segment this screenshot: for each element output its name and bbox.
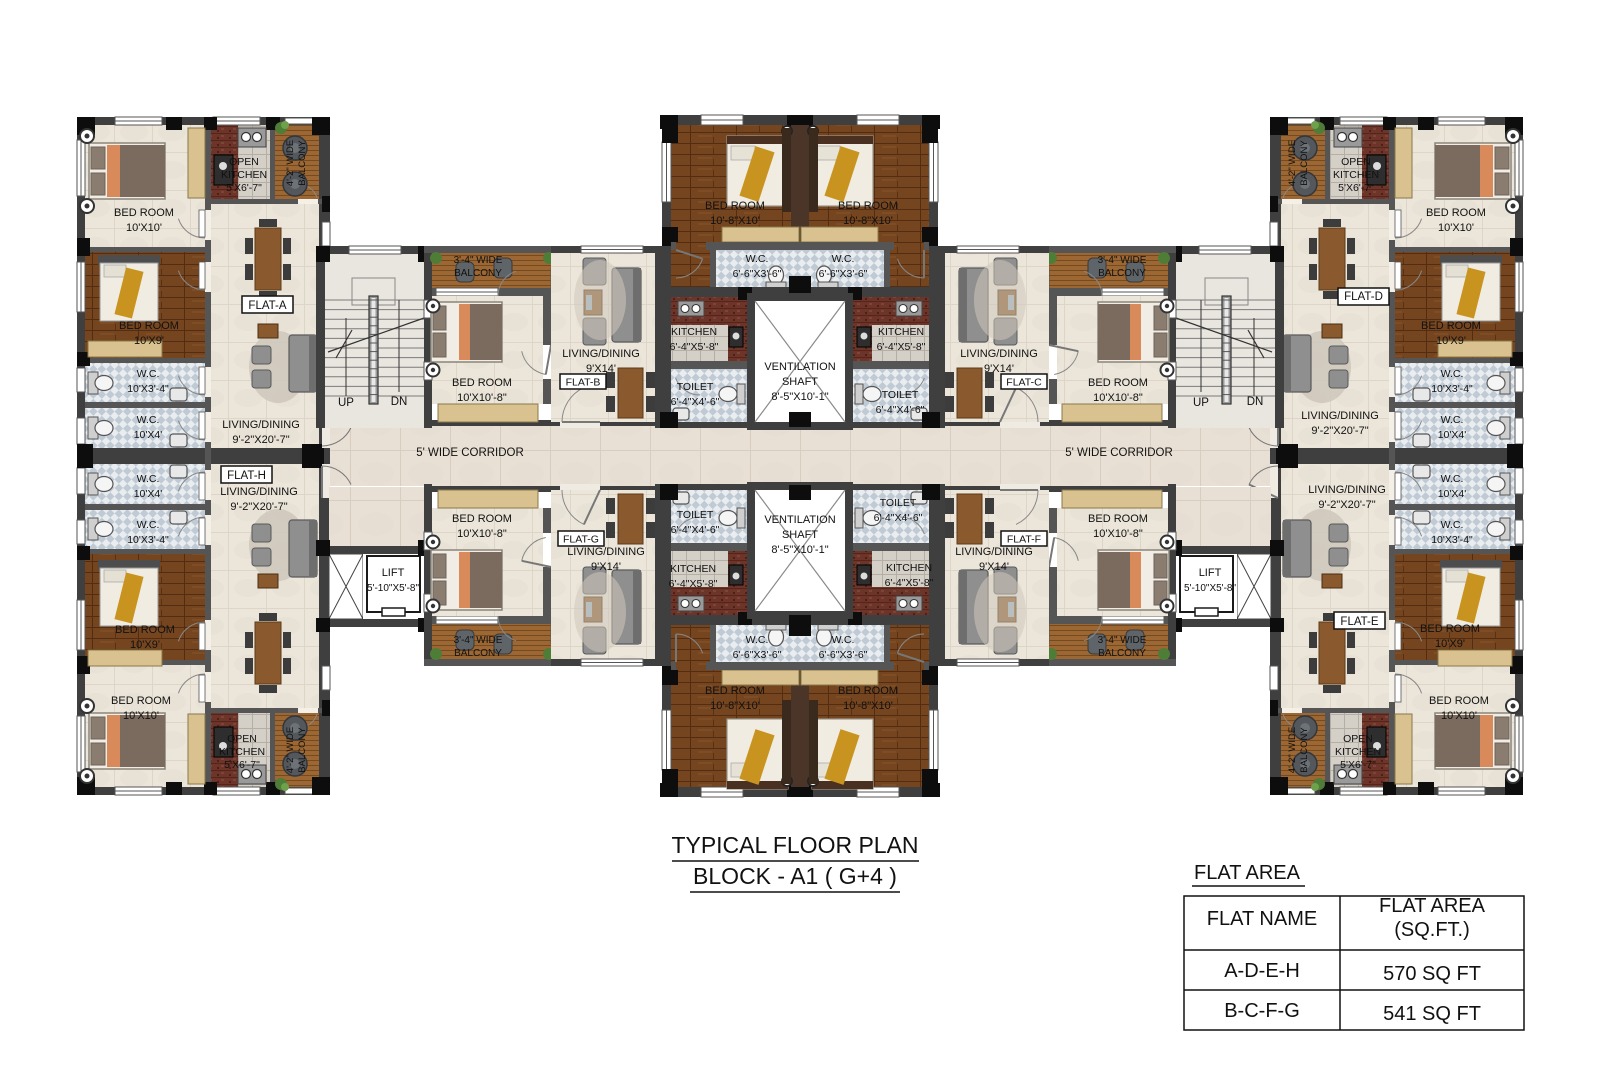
svg-text:9'-2"X20'-7": 9'-2"X20'-7" bbox=[232, 434, 289, 446]
svg-text:BED ROOM: BED ROOM bbox=[452, 377, 512, 389]
svg-text:W.C.: W.C. bbox=[137, 414, 160, 426]
svg-text:6'-6"X3'-6": 6'-6"X3'-6" bbox=[819, 649, 868, 661]
svg-text:W.C.: W.C. bbox=[746, 634, 769, 646]
svg-text:W.C.: W.C. bbox=[137, 368, 160, 380]
svg-text:SHAFT: SHAFT bbox=[782, 376, 818, 388]
svg-text:10'X3'-4": 10'X3'-4" bbox=[1431, 383, 1473, 395]
svg-text:8'-5"X10'-1": 8'-5"X10'-1" bbox=[771, 544, 828, 556]
svg-text:3'-4" WIDE: 3'-4" WIDE bbox=[454, 255, 503, 266]
svg-text:W.C.: W.C. bbox=[746, 253, 769, 265]
svg-text:BALCONY: BALCONY bbox=[1098, 648, 1146, 659]
svg-text:FLAT-F: FLAT-F bbox=[1007, 534, 1041, 546]
svg-text:9'X14': 9'X14' bbox=[984, 363, 1014, 375]
svg-text:10'-8"X10': 10'-8"X10' bbox=[710, 700, 760, 712]
svg-text:5' WIDE CORRIDOR: 5' WIDE CORRIDOR bbox=[1065, 447, 1173, 459]
svg-text:10'X9': 10'X9' bbox=[130, 639, 160, 651]
svg-text:KITCHEN: KITCHEN bbox=[1335, 746, 1381, 758]
svg-text:W.C.: W.C. bbox=[137, 519, 160, 531]
svg-text:DN: DN bbox=[391, 396, 408, 408]
svg-text:LIVING/DINING: LIVING/DINING bbox=[562, 348, 640, 360]
svg-text:4'-2" WIDE: 4'-2" WIDE bbox=[285, 140, 296, 186]
svg-text:FLAT AREA: FLAT AREA bbox=[1194, 862, 1301, 884]
svg-text:570 SQ FT: 570 SQ FT bbox=[1383, 963, 1481, 985]
svg-text:10'-8"X10': 10'-8"X10' bbox=[843, 700, 893, 712]
svg-text:W.C.: W.C. bbox=[832, 634, 855, 646]
svg-text:10'X4': 10'X4' bbox=[1438, 488, 1467, 500]
svg-text:6'-4"X5'-8": 6'-4"X5'-8" bbox=[877, 341, 926, 353]
svg-text:5'-10"X5'-8": 5'-10"X5'-8" bbox=[367, 583, 420, 594]
svg-text:9'-2"X20'-7": 9'-2"X20'-7" bbox=[230, 501, 287, 513]
svg-text:BALCONY: BALCONY bbox=[454, 268, 502, 279]
svg-text:3'-4" WIDE: 3'-4" WIDE bbox=[1098, 255, 1147, 266]
svg-text:BED ROOM: BED ROOM bbox=[1420, 623, 1480, 635]
svg-text:6'-4"X5'-8": 6'-4"X5'-8" bbox=[670, 341, 719, 353]
svg-text:10'X9': 10'X9' bbox=[134, 335, 164, 347]
svg-text:FLAT-C: FLAT-C bbox=[1006, 377, 1042, 389]
svg-text:BED ROOM: BED ROOM bbox=[1426, 207, 1486, 219]
svg-text:TOILET: TOILET bbox=[880, 497, 917, 509]
svg-text:LIVING/DINING: LIVING/DINING bbox=[220, 486, 298, 498]
svg-text:VENTILATION: VENTILATION bbox=[764, 361, 835, 373]
svg-text:A-D-E-H: A-D-E-H bbox=[1224, 960, 1300, 982]
svg-text:UP: UP bbox=[338, 397, 354, 409]
svg-text:LIFT: LIFT bbox=[1199, 567, 1222, 579]
svg-text:10'X9': 10'X9' bbox=[1436, 335, 1466, 347]
svg-text:FLAT-G: FLAT-G bbox=[563, 534, 599, 546]
svg-text:LIVING/DINING: LIVING/DINING bbox=[222, 419, 300, 431]
svg-text:9'X14': 9'X14' bbox=[979, 561, 1009, 573]
svg-text:9'X14': 9'X14' bbox=[586, 363, 616, 375]
svg-text:BALCONY: BALCONY bbox=[1299, 140, 1310, 186]
svg-text:10'X3'-4": 10'X3'-4" bbox=[127, 383, 169, 395]
svg-text:9'-2"X20'-7": 9'-2"X20'-7" bbox=[1311, 425, 1368, 437]
svg-text:LIVING/DINING: LIVING/DINING bbox=[955, 546, 1033, 558]
svg-text:6'-4"X5'-8": 6'-4"X5'-8" bbox=[669, 578, 718, 590]
svg-text:5' WIDE CORRIDOR: 5' WIDE CORRIDOR bbox=[416, 447, 524, 459]
svg-text:10'X10': 10'X10' bbox=[1441, 710, 1477, 722]
svg-text:BED ROOM: BED ROOM bbox=[705, 200, 765, 212]
svg-text:BED ROOM: BED ROOM bbox=[452, 513, 512, 525]
svg-text:FLAT-H: FLAT-H bbox=[227, 470, 266, 482]
svg-text:DN: DN bbox=[1247, 396, 1264, 408]
svg-text:KITCHEN: KITCHEN bbox=[221, 169, 267, 181]
svg-text:10'X4': 10'X4' bbox=[1438, 429, 1467, 441]
svg-text:6'-4"X4'-6": 6'-4"X4'-6" bbox=[874, 512, 923, 524]
svg-text:OPEN: OPEN bbox=[227, 733, 257, 745]
svg-text:LIVING/DINING: LIVING/DINING bbox=[1301, 410, 1379, 422]
svg-text:BED ROOM: BED ROOM bbox=[119, 320, 179, 332]
svg-text:5'X6'-7": 5'X6'-7" bbox=[224, 759, 260, 771]
svg-text:6'-6"X3'-6": 6'-6"X3'-6" bbox=[733, 649, 782, 661]
svg-text:9'-2"X20'-7": 9'-2"X20'-7" bbox=[1318, 499, 1375, 511]
svg-text:W.C.: W.C. bbox=[1441, 368, 1464, 380]
svg-text:KITCHEN: KITCHEN bbox=[886, 562, 932, 574]
svg-text:10'X4': 10'X4' bbox=[134, 429, 163, 441]
svg-text:10'X10'-8": 10'X10'-8" bbox=[1093, 528, 1143, 540]
svg-text:KITCHEN: KITCHEN bbox=[670, 563, 716, 575]
svg-text:10'-8"X10': 10'-8"X10' bbox=[710, 215, 760, 227]
svg-text:BED ROOM: BED ROOM bbox=[114, 207, 174, 219]
svg-text:4'-2" WIDE: 4'-2" WIDE bbox=[1287, 140, 1298, 186]
svg-text:3'-4" WIDE: 3'-4" WIDE bbox=[1098, 635, 1147, 646]
svg-text:10'X10'-8": 10'X10'-8" bbox=[1093, 392, 1143, 404]
svg-text:10'X3'-4": 10'X3'-4" bbox=[127, 534, 169, 546]
svg-text:W.C.: W.C. bbox=[137, 473, 160, 485]
svg-text:5'-10"X5'-8": 5'-10"X5'-8" bbox=[1184, 583, 1237, 594]
svg-text:FLAT-A: FLAT-A bbox=[248, 300, 286, 312]
svg-text:TOILET: TOILET bbox=[677, 381, 714, 393]
svg-text:BED ROOM: BED ROOM bbox=[1088, 513, 1148, 525]
svg-text:8'-5"X10'-1": 8'-5"X10'-1" bbox=[771, 391, 828, 403]
svg-text:BED ROOM: BED ROOM bbox=[1088, 377, 1148, 389]
svg-text:W.C.: W.C. bbox=[1441, 414, 1464, 426]
svg-text:6'-4"X4'-6": 6'-4"X4'-6" bbox=[671, 396, 720, 408]
svg-text:BLOCK - A1 ( G+4 ): BLOCK - A1 ( G+4 ) bbox=[693, 863, 897, 889]
svg-text:LIFT: LIFT bbox=[382, 567, 405, 579]
svg-text:SHAFT: SHAFT bbox=[782, 529, 818, 541]
svg-text:541 SQ FT: 541 SQ FT bbox=[1383, 1003, 1481, 1025]
svg-text:W.C.: W.C. bbox=[1441, 473, 1464, 485]
svg-text:KITCHEN: KITCHEN bbox=[671, 326, 717, 338]
svg-text:W.C.: W.C. bbox=[1441, 519, 1464, 531]
svg-text:LIVING/DINING: LIVING/DINING bbox=[960, 348, 1038, 360]
svg-text:VENTILATION: VENTILATION bbox=[764, 514, 835, 526]
svg-text:FLAT-E: FLAT-E bbox=[1340, 616, 1378, 628]
svg-text:6'-6"X3'-6": 6'-6"X3'-6" bbox=[819, 268, 868, 280]
svg-text:5'X6'-7": 5'X6'-7" bbox=[1340, 759, 1376, 771]
svg-text:(SQ.FT.): (SQ.FT.) bbox=[1394, 919, 1470, 941]
svg-text:10'X3'-4": 10'X3'-4" bbox=[1431, 534, 1473, 546]
svg-text:10'X10'-8": 10'X10'-8" bbox=[457, 392, 507, 404]
svg-text:BALCONY: BALCONY bbox=[1299, 727, 1310, 773]
svg-text:OPEN: OPEN bbox=[1341, 156, 1371, 168]
svg-text:BED ROOM: BED ROOM bbox=[115, 624, 175, 636]
svg-text:BALCONY: BALCONY bbox=[1098, 268, 1146, 279]
svg-text:4'-2" WIDE: 4'-2" WIDE bbox=[285, 727, 296, 773]
svg-text:OPEN: OPEN bbox=[229, 156, 259, 168]
svg-text:LIVING/DINING: LIVING/DINING bbox=[567, 546, 645, 558]
svg-text:10'X10': 10'X10' bbox=[126, 222, 162, 234]
svg-text:BED ROOM: BED ROOM bbox=[705, 685, 765, 697]
svg-text:KITCHEN: KITCHEN bbox=[1333, 169, 1379, 181]
svg-text:5'X6'-7": 5'X6'-7" bbox=[226, 182, 262, 194]
svg-text:10'X4': 10'X4' bbox=[134, 488, 163, 500]
svg-text:BED ROOM: BED ROOM bbox=[838, 685, 898, 697]
svg-text:FLAT NAME: FLAT NAME bbox=[1207, 908, 1317, 930]
svg-text:BED ROOM: BED ROOM bbox=[1421, 320, 1481, 332]
svg-text:BED ROOM: BED ROOM bbox=[111, 695, 171, 707]
svg-text:LIVING/DINING: LIVING/DINING bbox=[1308, 484, 1386, 496]
svg-text:BALCONY: BALCONY bbox=[297, 727, 308, 773]
svg-text:6'-6"X3'-6": 6'-6"X3'-6" bbox=[733, 268, 782, 280]
svg-text:BED ROOM: BED ROOM bbox=[1429, 695, 1489, 707]
svg-text:10'X10': 10'X10' bbox=[1438, 222, 1474, 234]
svg-text:FLAT-B: FLAT-B bbox=[566, 377, 601, 389]
svg-text:10'X10'-8": 10'X10'-8" bbox=[457, 528, 507, 540]
svg-text:10'X10': 10'X10' bbox=[123, 710, 159, 722]
svg-text:TOILET: TOILET bbox=[882, 389, 919, 401]
svg-text:OPEN: OPEN bbox=[1343, 733, 1373, 745]
svg-text:6'-4"X4'-6": 6'-4"X4'-6" bbox=[671, 524, 720, 536]
svg-text:UP: UP bbox=[1193, 397, 1209, 409]
svg-text:KITCHEN: KITCHEN bbox=[878, 326, 924, 338]
svg-text:6'-4"X4'-6": 6'-4"X4'-6" bbox=[876, 404, 925, 416]
svg-text:10'-8"X10': 10'-8"X10' bbox=[843, 215, 893, 227]
svg-text:3'-4" WIDE: 3'-4" WIDE bbox=[454, 635, 503, 646]
svg-text:5'X6'-7": 5'X6'-7" bbox=[1338, 182, 1374, 194]
svg-text:KITCHEN: KITCHEN bbox=[219, 746, 265, 758]
svg-text:4'-2" WIDE: 4'-2" WIDE bbox=[1287, 727, 1298, 773]
svg-text:6'-4"X5'-8": 6'-4"X5'-8" bbox=[885, 577, 934, 589]
svg-text:FLAT AREA: FLAT AREA bbox=[1379, 895, 1486, 917]
svg-text:10'X9': 10'X9' bbox=[1435, 638, 1465, 650]
svg-text:BALCONY: BALCONY bbox=[454, 648, 502, 659]
svg-text:FLAT-D: FLAT-D bbox=[1344, 291, 1383, 303]
svg-text:W.C.: W.C. bbox=[832, 253, 855, 265]
svg-text:BALCONY: BALCONY bbox=[297, 140, 308, 186]
svg-text:TYPICAL FLOOR PLAN: TYPICAL FLOOR PLAN bbox=[671, 832, 918, 858]
svg-text:TOILET: TOILET bbox=[677, 509, 714, 521]
svg-text:BED ROOM: BED ROOM bbox=[838, 200, 898, 212]
svg-text:B-C-F-G: B-C-F-G bbox=[1224, 1000, 1300, 1022]
svg-text:9'X14': 9'X14' bbox=[591, 561, 621, 573]
